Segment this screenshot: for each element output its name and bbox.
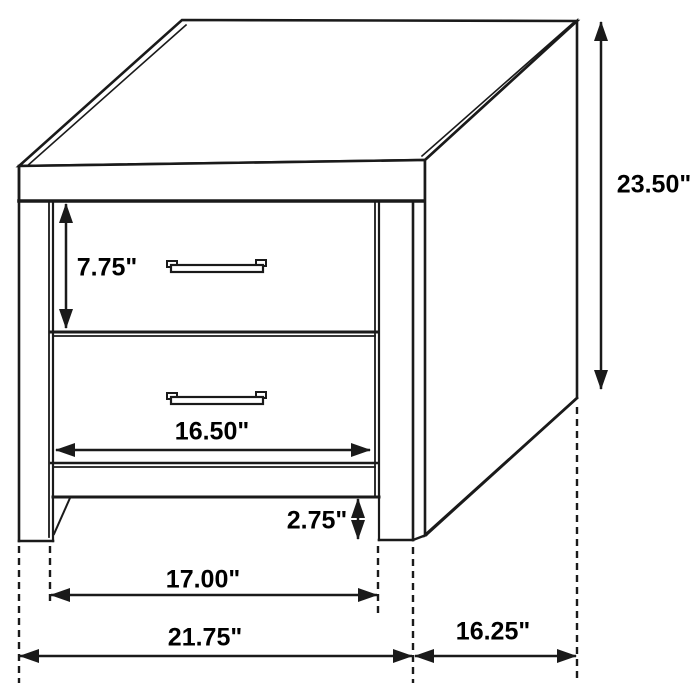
top-drawer-handle — [167, 260, 266, 272]
dim-label-inner-leg-span: 17.00" — [166, 568, 240, 593]
dim-label-overall-height: 23.50" — [617, 173, 691, 198]
bottom-drawer-handle — [167, 392, 266, 404]
top-panel-front-face — [19, 160, 425, 201]
dim-label-drawer-width: 16.50" — [175, 420, 249, 445]
dim-label-side-depth: 16.25" — [456, 620, 530, 645]
dim-label-drawer-face-height: 7.75" — [77, 256, 138, 281]
top-handle-bar — [171, 265, 263, 272]
bottom-handle-bar — [171, 397, 263, 404]
left-leg-recess-diagonal — [54, 498, 70, 534]
dim-label-base-clearance: 2.75" — [287, 509, 348, 534]
nightstand-line-drawing — [0, 0, 700, 700]
dim-label-overall-width: 21.75" — [168, 626, 242, 651]
diagram-canvas: 23.50" 7.75" 16.50" 2.75" 17.00" 21.75" … — [0, 0, 700, 700]
front-frame — [19, 166, 379, 541]
